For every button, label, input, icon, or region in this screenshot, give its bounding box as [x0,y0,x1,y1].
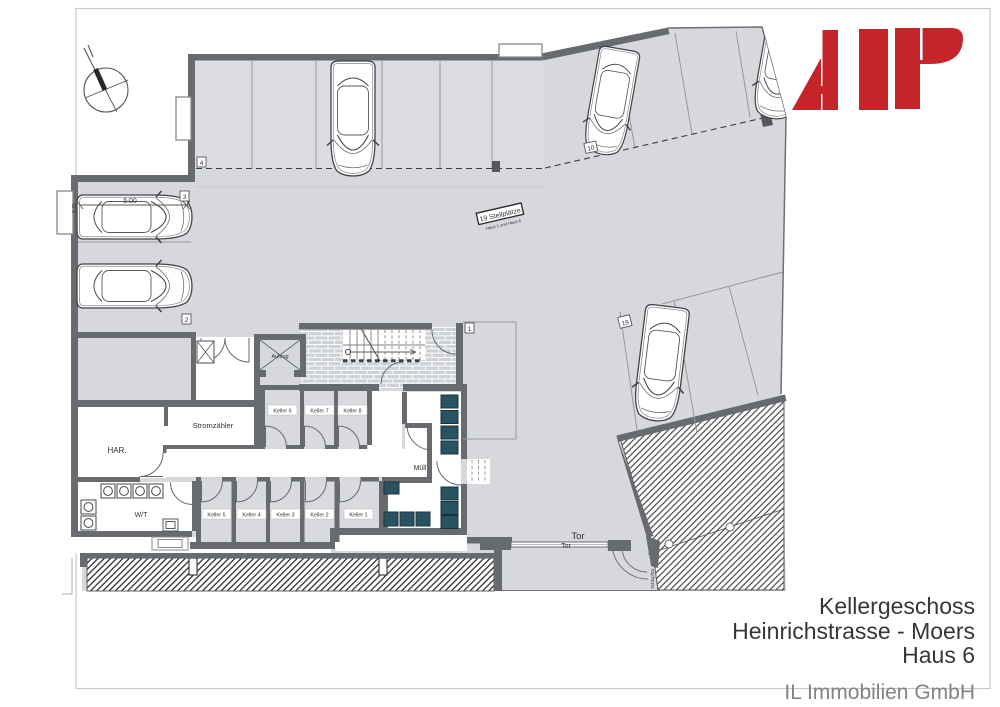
svg-text:Keller 5: Keller 5 [207,513,225,519]
svg-text:2: 2 [185,317,189,324]
svg-text:2.35: 2.35 [72,203,78,213]
svg-text:Tor: Tor [561,543,571,550]
svg-text:4: 4 [200,160,204,167]
svg-text:Keller 7: Keller 7 [310,409,328,415]
svg-text:Haus 6: Haus 6 [902,642,975,668]
svg-text:Müll: Müll [414,465,427,472]
svg-text:1: 1 [468,326,472,333]
svg-text:IL Immobilien GmbH: IL Immobilien GmbH [784,681,975,704]
svg-text:3: 3 [183,194,187,201]
svg-text:Keller 3: Keller 3 [276,513,294,519]
svg-text:Kellergeschoss: Kellergeschoss [819,593,975,619]
svg-text:W/T: W/T [135,512,149,519]
svg-text:Aufzug: Aufzug [271,354,288,360]
svg-text:HAR.: HAR. [107,446,126,455]
svg-text:Keller 6: Keller 6 [273,409,291,415]
svg-text:Keller 4: Keller 4 [242,513,260,519]
svg-text:Keller 2: Keller 2 [310,513,328,519]
svg-text:Keller 1: Keller 1 [349,513,367,519]
svg-text:Tor: Tor [571,531,584,542]
svg-text:Stromzähler: Stromzähler [193,421,234,430]
svg-text:Schlupftür: Schlupftür [650,568,655,589]
svg-text:Heinrichstrasse - Moers: Heinrichstrasse - Moers [732,618,975,644]
svg-text:Keller 8: Keller 8 [343,409,361,415]
svg-text:5.00: 5.00 [123,198,137,205]
